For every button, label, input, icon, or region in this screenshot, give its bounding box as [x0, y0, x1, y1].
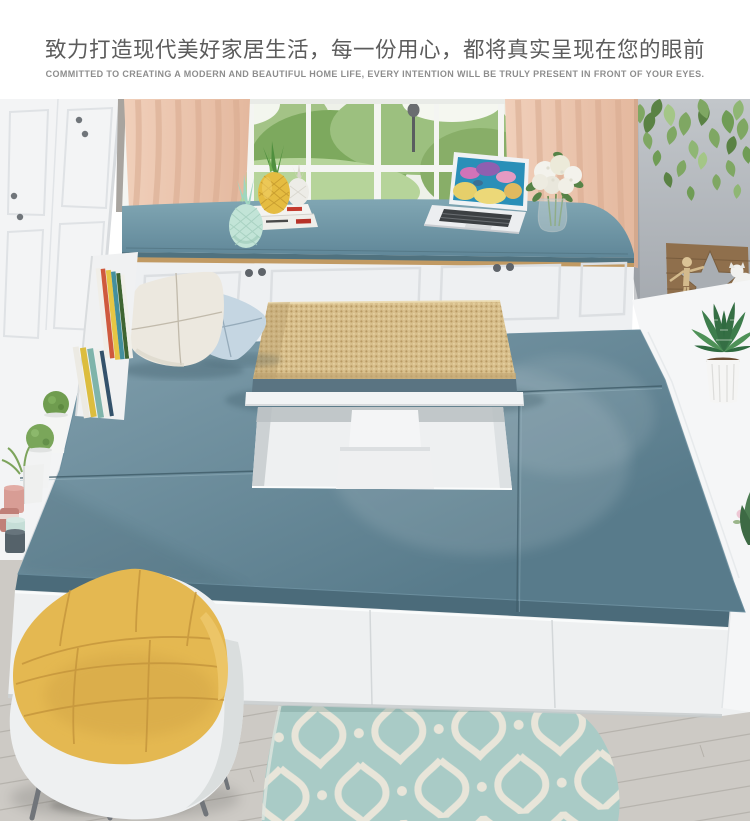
pillow-white: [127, 272, 224, 367]
lift-table: [245, 301, 524, 406]
table-mat: [253, 301, 516, 379]
promo-banner: 致力打造现代美好家居生活，每一份用心，都将真实呈现在您的眼前 COMMITTED…: [0, 0, 750, 99]
page: 致力打造现代美好家居生活，每一份用心，都将真实呈现在您的眼前 COMMITTED…: [0, 0, 750, 821]
room-photo: [0, 99, 750, 821]
banner-title: 致力打造现代美好家居生活，每一份用心，都将真实呈现在您的眼前: [0, 0, 750, 64]
banner-subtitle: COMMITTED TO CREATING A MODERN AND BEAUT…: [0, 69, 750, 79]
storage-compartment: [252, 407, 512, 489]
